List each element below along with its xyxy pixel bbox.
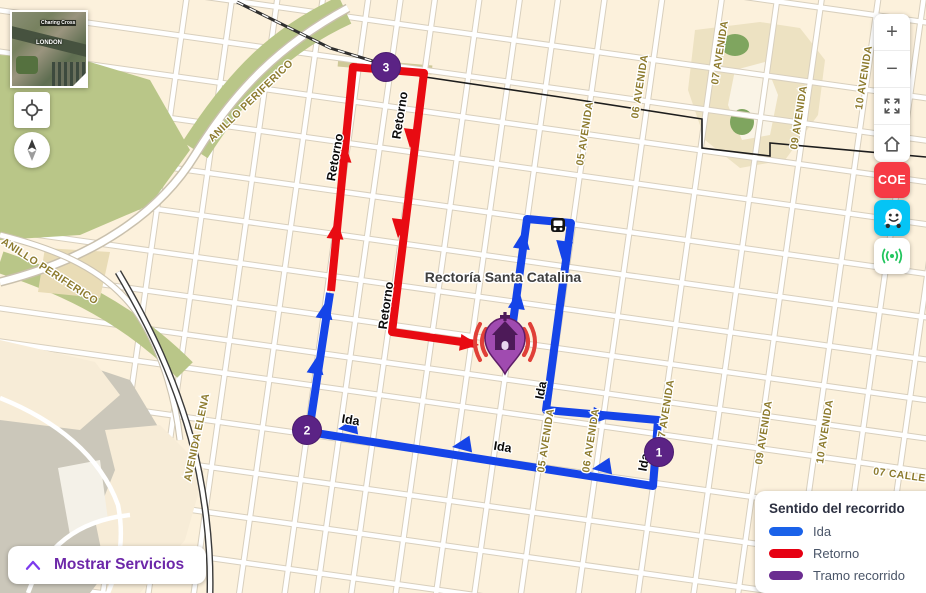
minimap-park [16, 56, 38, 74]
stop-marker-1[interactable]: 1 [645, 438, 674, 467]
locate-button[interactable] [14, 92, 50, 128]
bus-stop-icon[interactable] [551, 218, 565, 232]
broadcast-button[interactable] [874, 238, 910, 274]
waze-face-icon [877, 203, 907, 233]
legend-label: Ida [813, 524, 831, 539]
svg-text:1: 1 [656, 446, 663, 460]
legend-title: Sentido del recorrido [769, 501, 925, 516]
legend-label: Retorno [813, 546, 859, 561]
compass-needle-icon [19, 137, 45, 163]
route-label: Ida [341, 412, 362, 429]
home-icon [882, 134, 902, 154]
compass-button[interactable] [14, 132, 50, 168]
minimap-label: Charing Cross [40, 20, 76, 26]
tramo-color-swatch [769, 571, 803, 580]
show-services-label: Mostrar Servicios [54, 556, 184, 574]
coe-button[interactable]: COE [874, 162, 910, 198]
route-legend: Sentido del recorrido Ida Retorno Tramo … [755, 491, 926, 593]
svg-text:3: 3 [383, 61, 390, 75]
legend-item-retorno: Retorno [769, 546, 925, 561]
legend-item-tramo: Tramo recorrido [769, 568, 925, 583]
minus-icon: − [886, 58, 898, 81]
home-button[interactable] [874, 125, 910, 162]
svg-text:2: 2 [304, 424, 311, 438]
poi-label: Rectoría Santa Catalina [425, 269, 582, 285]
route-label: Ida [493, 439, 514, 456]
overview-minimap[interactable]: Charing Cross LONDON [10, 10, 88, 88]
plus-icon: + [886, 21, 898, 44]
minimap-label: LONDON [36, 40, 62, 46]
map-nav-panel: + − [874, 14, 910, 162]
chevron-up-icon [24, 558, 42, 572]
ida-color-swatch [769, 527, 803, 536]
stop-marker-3[interactable]: 3 [372, 53, 401, 82]
zoom-in-button[interactable]: + [874, 14, 910, 51]
expand-icon [883, 97, 901, 115]
retorno-color-swatch [769, 549, 803, 558]
minimap-collapse-handle[interactable] [73, 73, 86, 86]
waze-button[interactable] [874, 200, 910, 236]
stop-marker-2[interactable]: 2 [293, 416, 322, 445]
zoom-out-button[interactable]: − [874, 51, 910, 88]
show-services-button[interactable]: Mostrar Servicios [8, 546, 206, 584]
legend-item-ida: Ida [769, 524, 925, 539]
crosshair-icon [20, 98, 44, 122]
fullscreen-button[interactable] [874, 88, 910, 125]
coe-label: COE [878, 173, 906, 187]
legend-label: Tramo recorrido [813, 568, 905, 583]
map-view: ANILLO PERIFERICO ANILLO PERIFERICO AVEN… [0, 0, 926, 593]
broadcast-icon [879, 243, 905, 269]
